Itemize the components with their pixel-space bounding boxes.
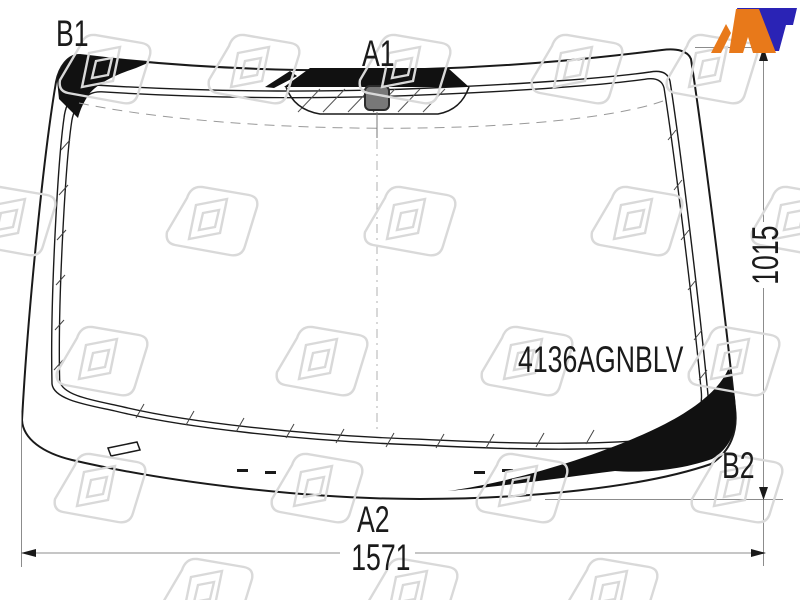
zone-label-a1: A1 — [362, 35, 395, 72]
zone-label-b2: B2 — [722, 447, 755, 484]
wiper-slot — [108, 442, 140, 456]
dimension-height-value: 1015 — [747, 227, 779, 285]
drawing-canvas — [0, 0, 800, 600]
outer-outline — [22, 49, 736, 499]
reference-lines — [79, 101, 663, 433]
glass-inner-line — [59, 79, 701, 444]
mirror-bracket-area — [286, 86, 469, 114]
zone-label-a2: A2 — [357, 501, 390, 538]
edge-hatch-ticks — [54, 130, 707, 448]
frit-black-areas — [57, 55, 736, 491]
arrow-left-icon — [21, 549, 36, 557]
arrow-down-icon — [759, 487, 768, 500]
windshield-outline — [22, 49, 736, 499]
part-number: 4136AGNBLV — [518, 341, 683, 378]
zone-label-b1: B1 — [56, 15, 89, 52]
rain-sensor-icon — [365, 86, 389, 110]
windshield-technical-drawing: B1 A1 A2 B2 1571 1015 4136AGNBLV — [0, 0, 800, 600]
frit-corner-b1 — [57, 55, 150, 118]
glass-edge-line — [52, 71, 709, 449]
at-logo-letter-a-sliver — [711, 24, 731, 53]
at-logo — [711, 8, 797, 53]
position-dashes — [237, 469, 513, 474]
watermark-pattern — [0, 35, 800, 600]
dimension-width-value: 1571 — [351, 539, 409, 576]
